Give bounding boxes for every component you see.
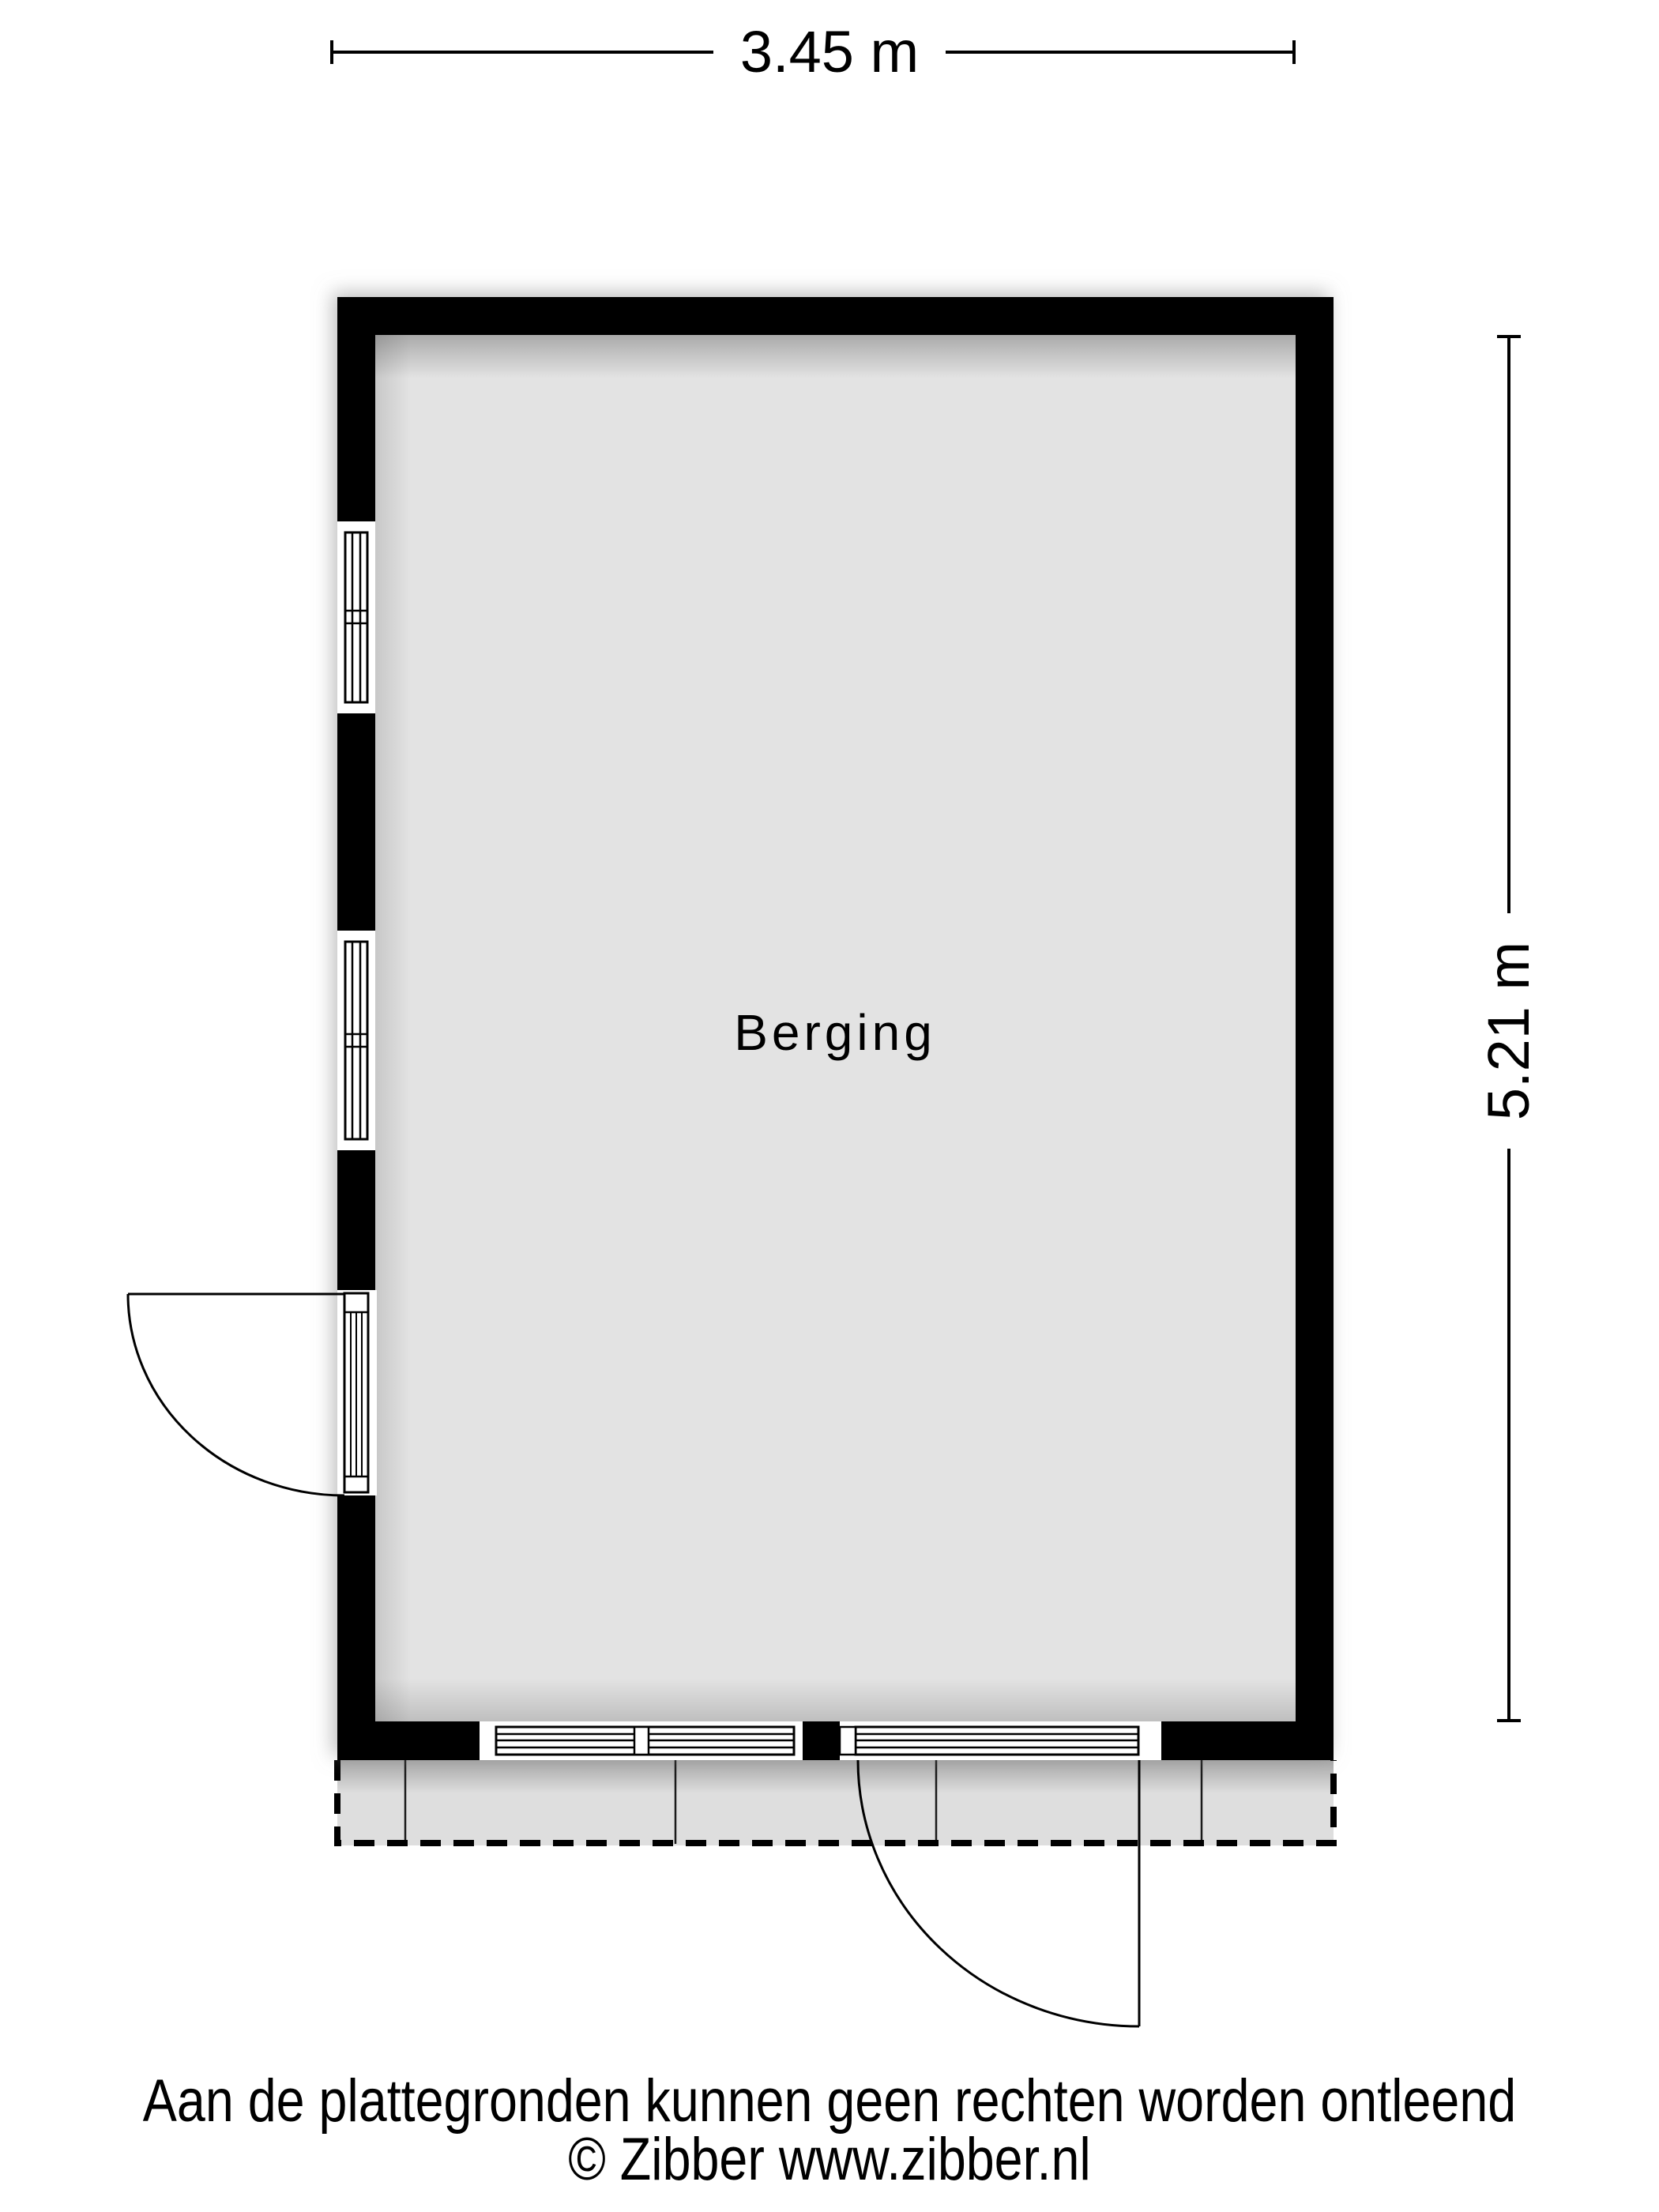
- copyright-text: © Zibber www.zibber.nl: [568, 2130, 1091, 2190]
- room-shadow-bottom: [375, 1678, 1296, 1721]
- terrace-shadow: [337, 1760, 1334, 1793]
- dimension-height-label: 5.21 m: [1480, 942, 1538, 1120]
- window-bottom: [480, 1721, 803, 1760]
- room-label: Berging: [734, 1007, 936, 1058]
- window-left-1: [337, 521, 375, 713]
- window-bottom-mullion: [634, 1727, 649, 1755]
- terrace: [337, 1760, 1334, 1845]
- room-shadow-left: [375, 335, 411, 1721]
- floor-plan-drawing: [0, 0, 1659, 2212]
- window-left-2: [337, 931, 375, 1150]
- floor-plan-page: 3.45 m 5.21 m Berging Aan de plattegrond…: [0, 0, 1659, 2212]
- door-left: [128, 1290, 377, 1495]
- dimension-width-label: 3.45 m: [740, 23, 919, 81]
- room-shadow-top: [375, 335, 1296, 378]
- door-left-swing-arc: [128, 1294, 344, 1495]
- disclaimer-text: Aan de plattegronden kunnen geen rechten…: [143, 2071, 1516, 2131]
